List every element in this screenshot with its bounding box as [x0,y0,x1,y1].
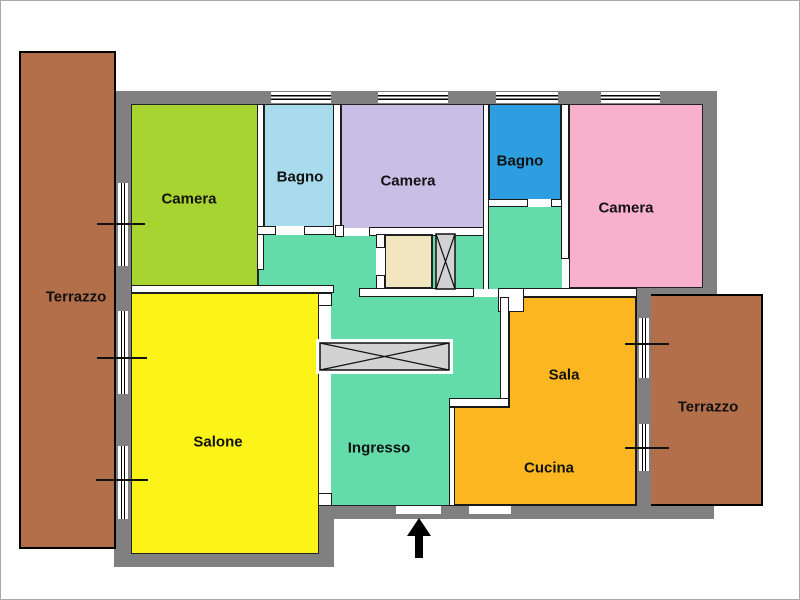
floor-plan: Terrazzo Camera Bagno Camera Bagno Camer… [0,0,800,600]
room-label-terrazzo-right: Terrazzo [678,399,739,416]
door-opening-entrance [396,506,441,514]
wall-jamb-camera-n [335,225,344,237]
tick-sala [625,343,669,345]
room-label-salone: Salone [193,434,242,451]
room-label-cucina: Cucina [524,460,574,477]
room-label-bagno-2: Bagno [497,153,544,170]
door-opening-bagno-1 [276,226,304,235]
wall-camera-nw-east [257,104,264,270]
wall-bottom-connector [319,506,334,567]
room-label-camera-ne: Camera [598,200,653,217]
door-opening-camera-n [344,228,369,236]
wall-jamb-salone-top [318,293,332,306]
window-bagno2 [496,92,558,103]
door-opening-bagno-2 [528,199,551,207]
window-salone-1 [118,311,128,394]
wall-closet-stub-bottom [376,275,385,289]
wall-bagno2-south-a [488,199,528,207]
room-camera-n [341,104,484,231]
entrance-arrow-icon [405,518,433,558]
room-label-camera-n: Camera [380,173,435,190]
room-label-bagno-1: Bagno [277,169,324,186]
wall-closet-stub-top [376,234,385,248]
wall-jamb-salone-bottom [318,493,332,506]
wall-bottom-right [319,506,714,519]
wall-bottom-left [114,554,334,567]
room-bagno-1 [264,104,334,228]
wall-sala-west [500,297,509,407]
wall-sala-step [449,398,509,407]
tick-salone-2 [96,479,148,481]
wall-right-upper [703,91,717,299]
tick-camera-nw [97,223,145,225]
shaft-hatched [434,232,457,291]
wall-camera-ne-west [561,104,569,259]
door-opening-cucina [469,506,511,514]
tick-cucina [625,447,669,449]
room-label-camera-nw: Camera [161,191,216,208]
room-salone [131,293,319,554]
window-bagno1 [271,92,331,103]
room-label-sala: Sala [549,367,580,384]
window-camera-ne [601,92,660,103]
door-opening-camera-ne [562,259,569,288]
room-label-terrazzo-left: Terrazzo [46,289,107,306]
window-camera-n [378,92,448,103]
room-camera-ne [569,104,703,288]
door-opening-hall [474,289,498,297]
stairs-hatched [316,339,453,374]
wall-bagno1-east [333,104,341,235]
room-closet [384,234,433,289]
room-label-ingresso: Ingresso [348,440,411,457]
window-sala [639,318,649,378]
opening-salone-ingresso [319,293,331,506]
wall-cucina-west [449,407,455,506]
wall-bagno1-south-b [304,226,334,235]
tick-salone-1 [97,357,147,359]
wall-camera-nw-south [131,285,334,293]
door-opening-closet [376,248,385,275]
wall-bagno1-south-a [257,226,276,235]
window-salone-2 [118,446,128,519]
